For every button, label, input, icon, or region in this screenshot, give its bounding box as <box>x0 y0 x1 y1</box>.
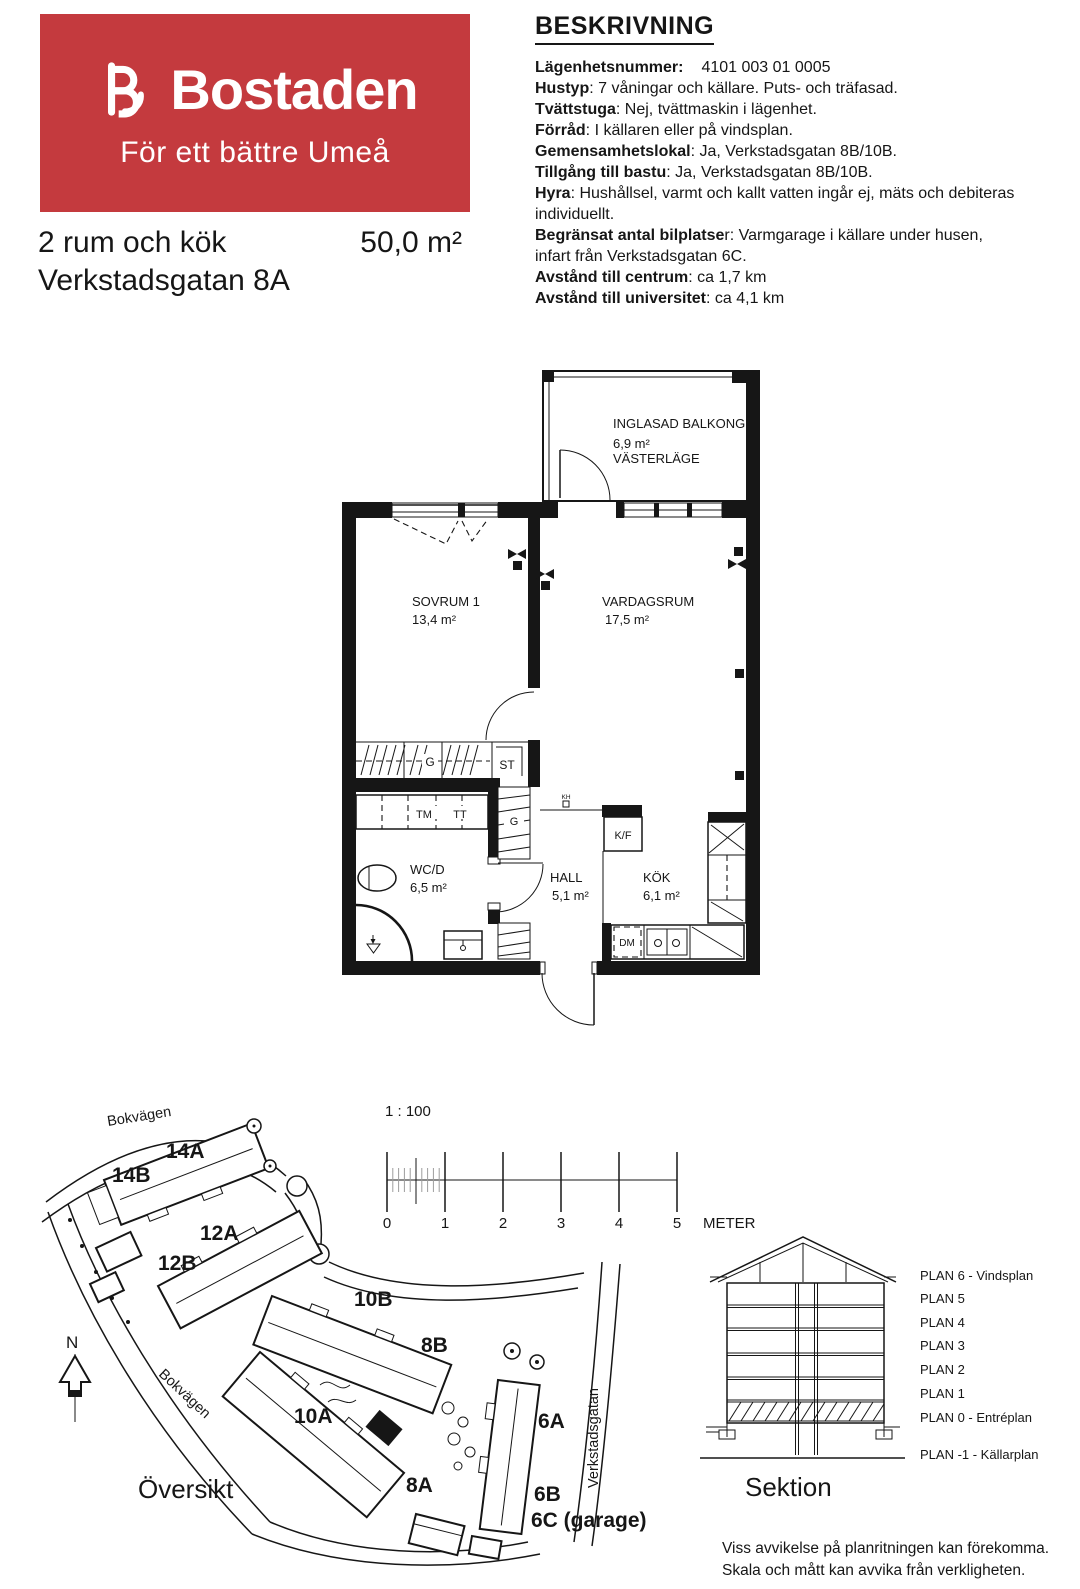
description-row: Hustyp: 7 våningar och källare. Puts- oc… <box>535 78 1017 99</box>
hall-boundary: KH <box>540 794 602 810</box>
description-row: Tvättstuga: Nej, tvättmaskin i lägenhet. <box>535 99 1017 120</box>
logo-box: Bostaden För ett bättre Umeå <box>40 14 470 212</box>
room-wc-area: 6,5 m² <box>410 880 448 895</box>
apartment-location-marker <box>365 1410 402 1446</box>
street-bokvagen-left: Bokvägen <box>155 1366 213 1422</box>
shower <box>356 905 412 961</box>
description-row: Förråd: I källaren eller på vindsplan. <box>535 120 1017 141</box>
section-drawing: PLAN 6 - Vindsplan PLAN 5 PLAN 4 PLAN 3 … <box>700 1225 1080 1517</box>
description-row: Avstånd till universitet: ca 4,1 km <box>535 288 1017 309</box>
description-panel: BESKRIVNING Lägenhetsnummer:4101 003 01 … <box>535 12 1017 309</box>
description-row: Hyra: Hushållsel, varmt och kallt vatten… <box>535 183 1017 225</box>
tvattmaskin-label: TM <box>416 809 432 821</box>
interior-wall-sovrum <box>486 516 540 787</box>
window-vardagsrum <box>624 503 722 517</box>
balcony: INGLASAD BALKONG 6,9 m² VÄSTERLÄGE <box>543 371 760 502</box>
garderob-hall-label: G <box>510 816 519 828</box>
disclaimer-line2: Skala och mått kan avvika från verklighe… <box>722 1560 1062 1582</box>
description-items: Lägenhetsnummer:4101 003 01 0005 Hustyp:… <box>535 57 1017 309</box>
building-label-6c: 6C (garage) <box>531 1509 647 1532</box>
bostaden-b-icon <box>92 57 156 121</box>
room-sovrum-name: SOVRUM 1 <box>412 594 480 609</box>
diskmaskin-label: DM <box>619 938 635 949</box>
room-vardagsrum-name: VARDAGSRUM <box>602 594 694 609</box>
kyl-frys-label: K/F <box>614 830 631 842</box>
description-row: Avstånd till centrum: ca 1,7 km <box>535 267 1017 288</box>
floorplan-document: Bostaden För ett bättre Umeå 2 rum och k… <box>0 0 1080 1589</box>
brand-wordmark: Bostaden <box>170 57 417 122</box>
plan-label: PLAN 1 <box>920 1386 965 1401</box>
disclaimer: Viss avvikelse på planritningen kan före… <box>722 1538 1062 1581</box>
building-label-6b: 6B <box>534 1483 561 1506</box>
apartment-address: Verkstadsgatan 8A <box>38 264 290 298</box>
fridge-freezer: K/F <box>602 805 642 923</box>
vent-marks <box>508 547 746 780</box>
room-wc-name: WC/D <box>410 862 445 877</box>
balcony-area: 6,9 m² <box>613 436 651 451</box>
garderob-label: G <box>425 755 434 769</box>
description-title: BESKRIVNING <box>535 12 714 45</box>
building-label-14b: 14B <box>112 1164 151 1187</box>
building-label-10b: 10B <box>354 1288 393 1311</box>
floorplan-drawing: INGLASAD BALKONG 6,9 m² VÄSTERLÄGE <box>330 355 770 1035</box>
toilet <box>358 865 396 891</box>
plan-label: PLAN 5 <box>920 1291 965 1306</box>
room-vardagsrum-area: 17,5 m² <box>605 612 650 627</box>
section-building <box>700 1237 905 1458</box>
building-label-14a: 14A <box>166 1140 205 1163</box>
street-verkstadsgatan: Verkstadsgatan <box>586 1388 602 1488</box>
apartment-type: 2 rum och kök <box>38 226 226 260</box>
building-label-8b: 8B <box>421 1334 448 1357</box>
balcony-name: INGLASAD BALKONG <box>613 416 745 431</box>
torktumlare-label: TT <box>453 809 467 821</box>
north-arrow: N <box>60 1333 90 1422</box>
building-label-6a: 6A <box>538 1410 565 1433</box>
tm-tt-band: TM TT <box>356 795 488 829</box>
room-sovrum-area: 13,4 m² <box>412 612 457 627</box>
brand-tagline: För ett bättre Umeå <box>120 136 390 170</box>
site-map: N Bokvägen Bokvägen Verkstadsgatan 14A 1… <box>20 1090 680 1570</box>
description-row: Tillgång till bastu: Ja, Verkstadsgatan … <box>535 162 1017 183</box>
building-6 <box>472 1379 540 1534</box>
kapphylla-label: KH <box>561 794 570 801</box>
building-label-8a: 8A <box>406 1474 433 1497</box>
description-row: Gemensamhetslokal: Ja, Verkstadsgatan 8B… <box>535 141 1017 162</box>
sitemap-title: Översikt <box>138 1474 234 1504</box>
stad-label: ST <box>499 758 515 772</box>
disclaimer-line1: Viss avvikelse på planritningen kan före… <box>722 1538 1062 1560</box>
hall-closet: G <box>498 787 530 959</box>
street-bokvagen-top: Bokvägen <box>106 1104 172 1130</box>
wardrobe-band: G ST <box>356 742 528 792</box>
sovrum-door-arc <box>486 692 534 740</box>
balcony-orientation: VÄSTERLÄGE <box>613 451 700 466</box>
washbasin <box>444 931 482 959</box>
north-label: N <box>66 1333 78 1352</box>
window-sovrum <box>392 503 498 544</box>
plan-label: PLAN 0 - Entréplan <box>920 1410 1032 1425</box>
room-kok-area: 6,1 m² <box>643 888 681 903</box>
wc-door-arc <box>495 864 543 912</box>
description-row: Begränsat antal bilplatser: Varmgarage i… <box>535 225 1017 267</box>
section-title: Sektion <box>745 1472 832 1502</box>
plan-label: PLAN -1 - Källarplan <box>920 1447 1039 1462</box>
building-label-12b: 12B <box>158 1252 197 1275</box>
room-hall-area: 5,1 m² <box>552 888 590 903</box>
apartment-area: 50,0 m² <box>360 226 462 260</box>
room-hall-name: HALL <box>550 870 583 885</box>
plan-label: PLAN 6 - Vindsplan <box>920 1268 1033 1283</box>
building-label-12a: 12A <box>200 1222 239 1245</box>
plan-label: PLAN 2 <box>920 1362 965 1377</box>
plan-label: PLAN 3 <box>920 1338 965 1353</box>
description-row: Lägenhetsnummer:4101 003 01 0005 <box>535 57 1017 78</box>
room-kok-name: KÖK <box>643 870 671 885</box>
building-label-10a: 10A <box>294 1405 333 1428</box>
plan-label: PLAN 4 <box>920 1315 965 1330</box>
